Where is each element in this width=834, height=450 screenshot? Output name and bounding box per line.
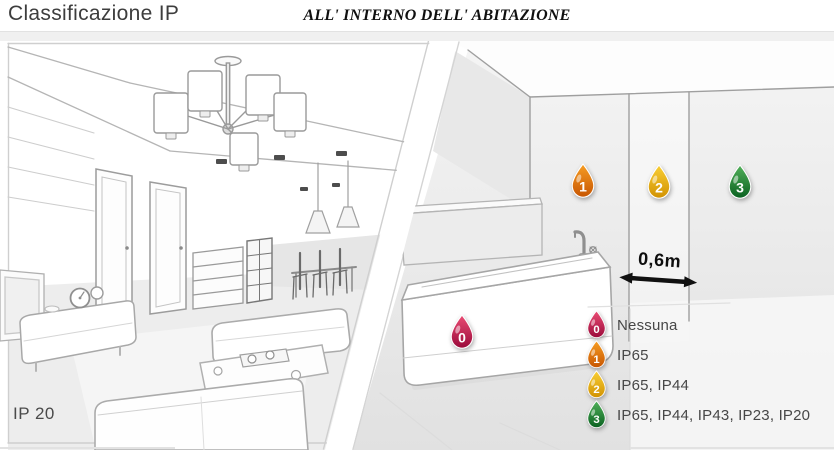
svg-text:0: 0	[593, 324, 599, 336]
legend-label: IP65	[617, 347, 649, 364]
legend-drop-icon: 1	[585, 340, 608, 370]
page-subtitle: ALL' INTERNO DELL' ABITAZIONE	[40, 7, 834, 25]
wall-paneling	[8, 107, 94, 211]
distance-annotation: 0,6m	[618, 247, 700, 290]
door	[96, 169, 132, 323]
drop-number: 2	[655, 180, 663, 196]
half-wall	[398, 198, 542, 265]
zone-3-drop-icon: 3	[726, 164, 754, 201]
drawer-chest	[193, 247, 243, 309]
legend-row: 2 IP65, IP44	[585, 370, 810, 400]
wardrobe	[247, 238, 272, 303]
legend-drop-icon: 3	[585, 400, 608, 430]
distance-label: 0,6m	[637, 249, 681, 272]
ip-zones-legend: 0 Nessuna 1 IP65 2 IP65, IP44	[585, 310, 810, 430]
zone-1-drop-icon: 1	[569, 163, 597, 200]
legend-row: 3 IP65, IP44, IP43, IP23, IP20	[585, 400, 810, 430]
door	[150, 182, 186, 314]
ip20-label: IP 20	[13, 404, 55, 424]
legend-label: Nessuna	[617, 317, 678, 334]
legend-row: 0 Nessuna	[585, 310, 810, 340]
pendant-lamps	[306, 161, 359, 233]
bottom-edge-right	[630, 447, 834, 449]
zone-0-drop-icon: 0	[448, 314, 476, 351]
illustration-stage: 0 1 2 3 0,6m 0	[0, 41, 834, 450]
legend-drop-icon: 2	[585, 370, 608, 400]
page: Classificazione IP ALL' INTERNO DELL' AB…	[0, 0, 834, 450]
drop-number: 3	[736, 180, 744, 196]
zone-2-drop-icon: 2	[645, 164, 673, 201]
legend-row: 1 IP65	[585, 340, 810, 370]
legend-label: IP65, IP44	[617, 377, 689, 394]
bottom-edge-left	[0, 447, 175, 449]
svg-text:3: 3	[593, 414, 599, 426]
drop-number: 1	[579, 179, 587, 195]
svg-text:2: 2	[593, 384, 599, 396]
drop-number: 0	[458, 330, 466, 346]
legend-label: IP65, IP44, IP43, IP23, IP20	[617, 407, 810, 424]
legend-drop-icon: 0	[585, 310, 608, 340]
svg-text:1: 1	[593, 354, 599, 366]
chandelier	[154, 57, 306, 172]
